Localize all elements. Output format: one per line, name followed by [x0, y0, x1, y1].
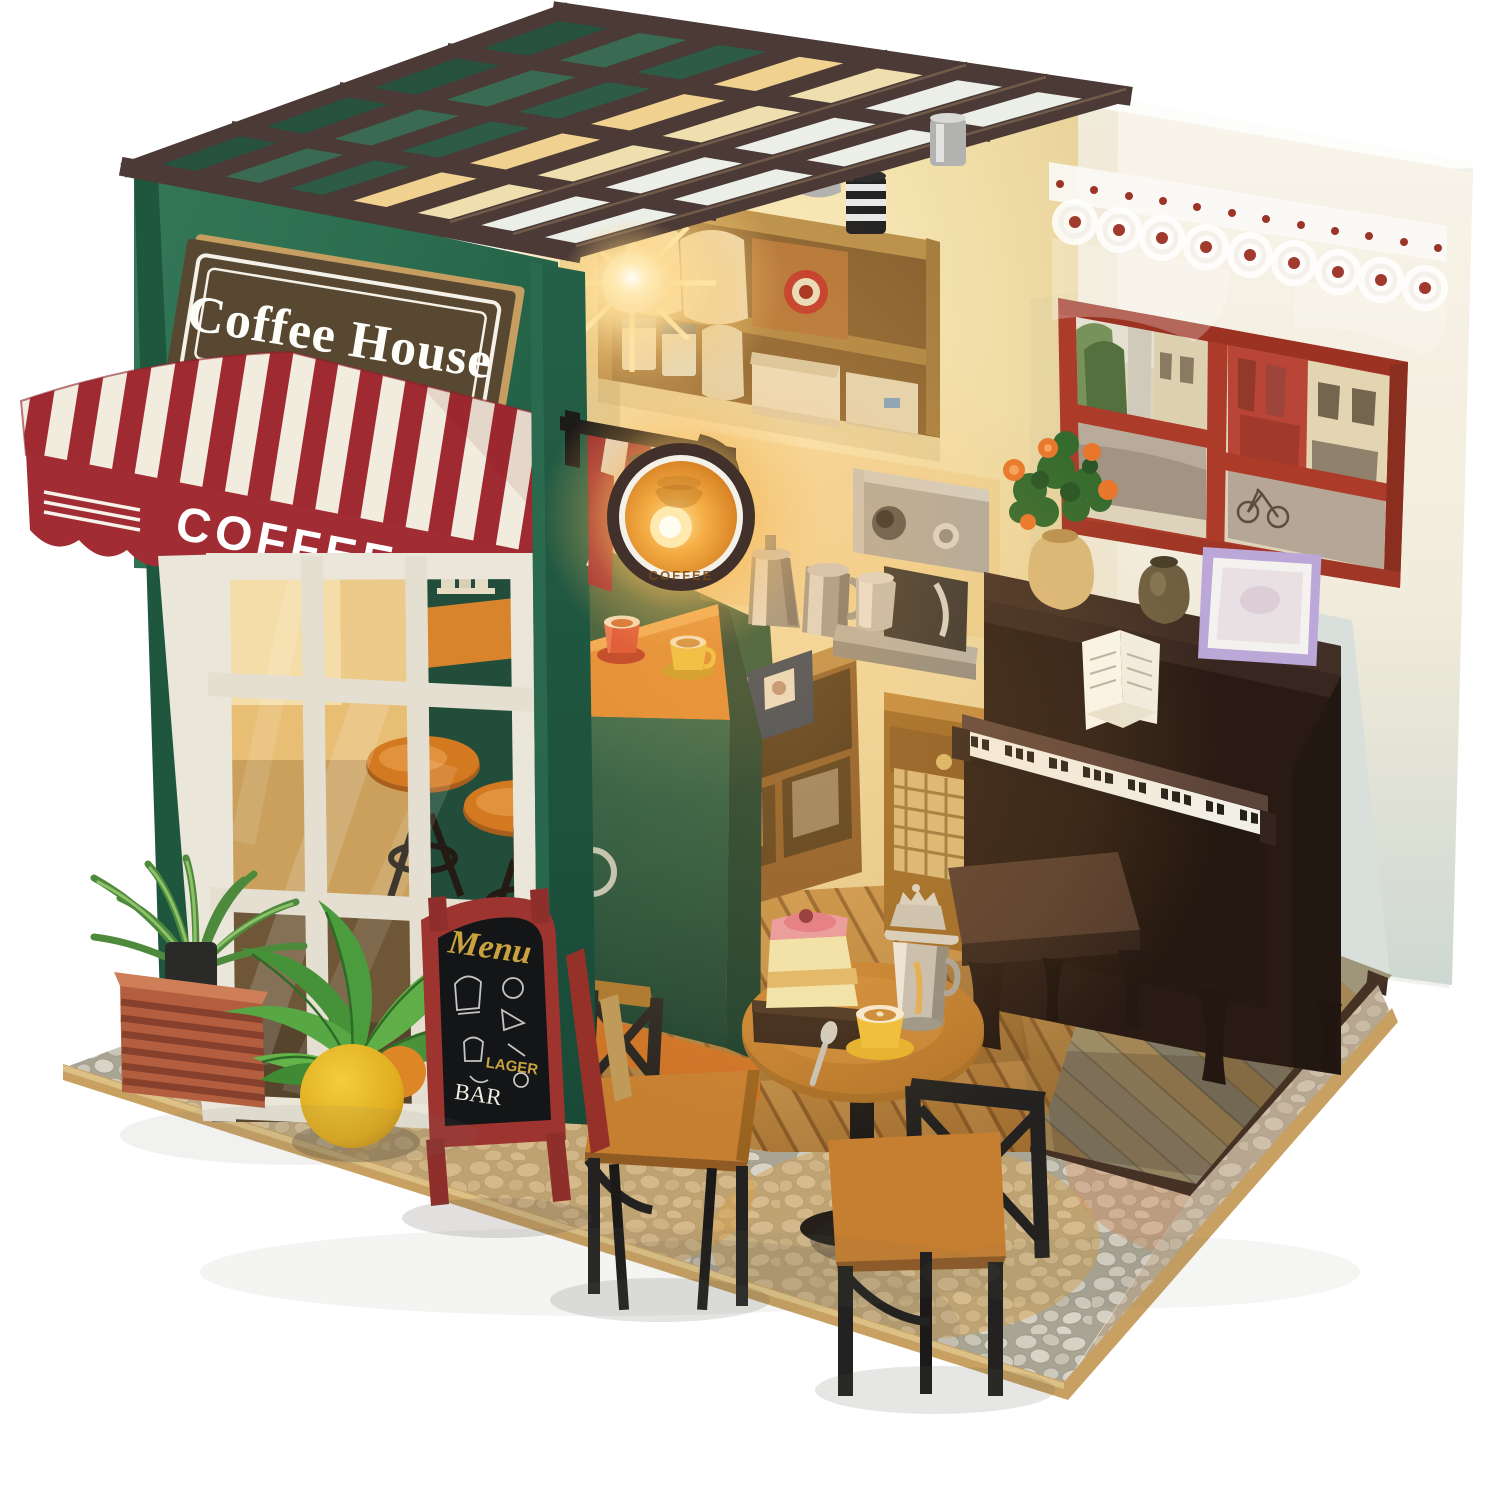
svg-text:COFFEE: COFFEE [649, 568, 714, 583]
